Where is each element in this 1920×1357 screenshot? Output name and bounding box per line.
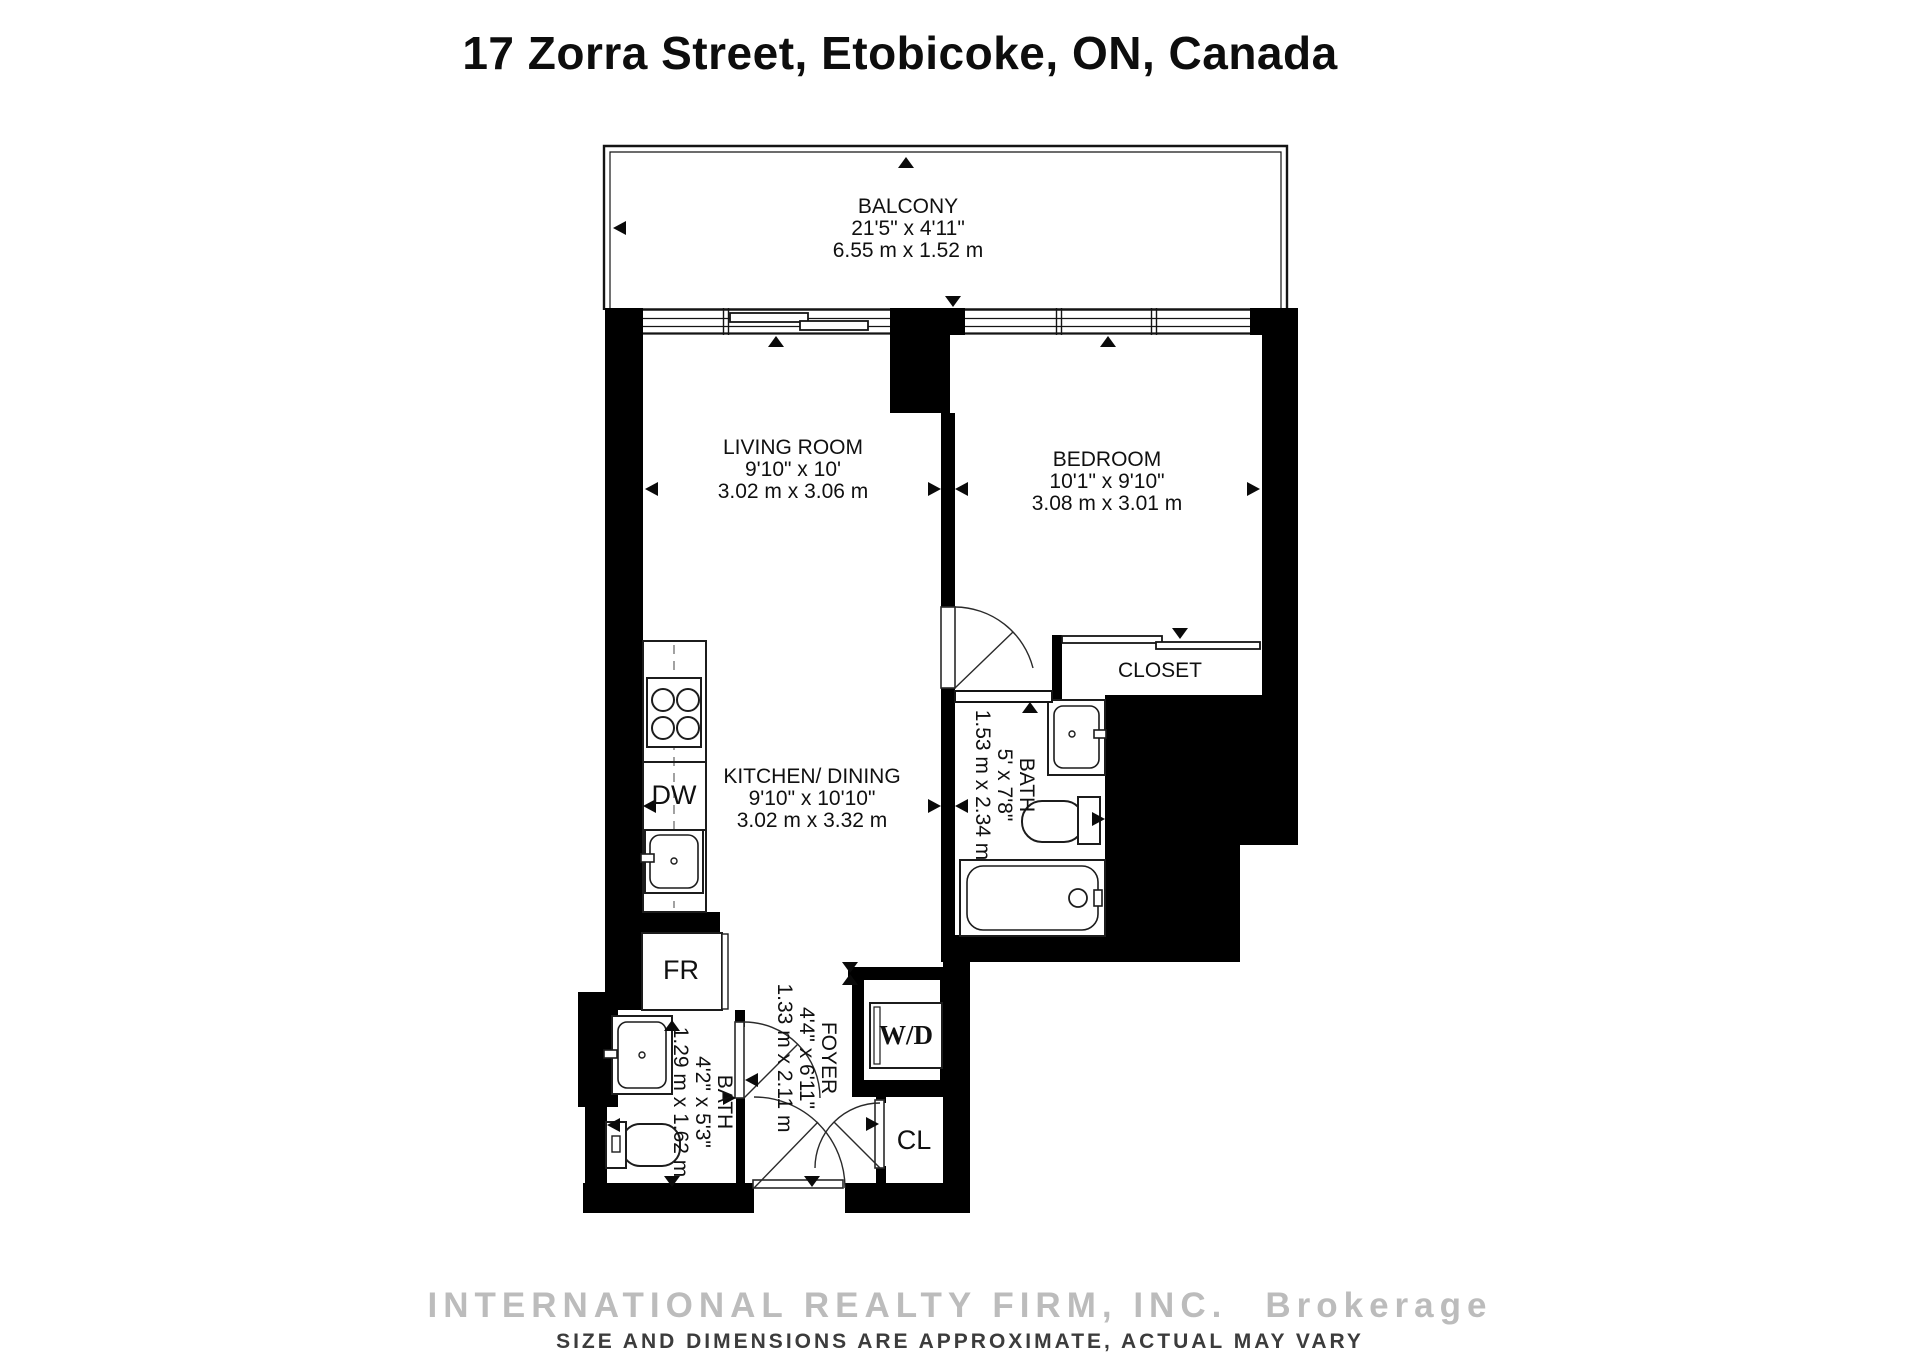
disclaimer-text: SIZE AND DIMENSIONS ARE APPROXIMATE, ACT… xyxy=(0,1330,1920,1354)
fridge-label: FR xyxy=(641,956,721,984)
bath-ensuite-label: BATH 5' x 7'8" 1.53 m x 2.34 m xyxy=(971,690,1037,880)
brokerage-watermark: INTERNATIONAL REALTY FIRM, INC.Brokerage xyxy=(0,1286,1920,1326)
bedroom-label: BEDROOM 10'1" x 9'10" 3.08 m x 3.01 m xyxy=(957,449,1257,515)
ensuite-sink-icon xyxy=(1048,700,1106,775)
bedroom-door xyxy=(941,607,1033,688)
balcony-sliding-door xyxy=(730,313,868,330)
brokerage-name: INTERNATIONAL REALTY FIRM, INC. xyxy=(428,1286,1228,1325)
washer-dryer-label: W/D xyxy=(866,1021,946,1049)
closet-sliding-doors xyxy=(1062,636,1260,649)
living-room-label: LIVING ROOM 9'10" x 10' 3.02 m x 3.06 m xyxy=(643,437,943,503)
closet-label: CLOSET xyxy=(1060,660,1260,682)
closet-small-label: CL xyxy=(874,1126,954,1154)
balcony-label: BALCONY 21'5" x 4'11" 6.55 m x 1.52 m xyxy=(758,196,1058,262)
foyer-label: FOYER 4'4" x 6'11" 1.33 m x 2.11 m xyxy=(773,971,839,1145)
kitchen-sink-icon xyxy=(641,830,703,893)
brokerage-suffix: Brokerage xyxy=(1265,1286,1492,1325)
bedroom-window xyxy=(965,308,1250,335)
dishwasher-label: DW xyxy=(634,781,714,809)
stove-icon xyxy=(647,678,701,747)
bath2-sink-icon xyxy=(604,1016,672,1094)
bath-second-label: BATH 4'2" x 5'3" 1.29 m x 1.62 m xyxy=(669,1007,735,1197)
